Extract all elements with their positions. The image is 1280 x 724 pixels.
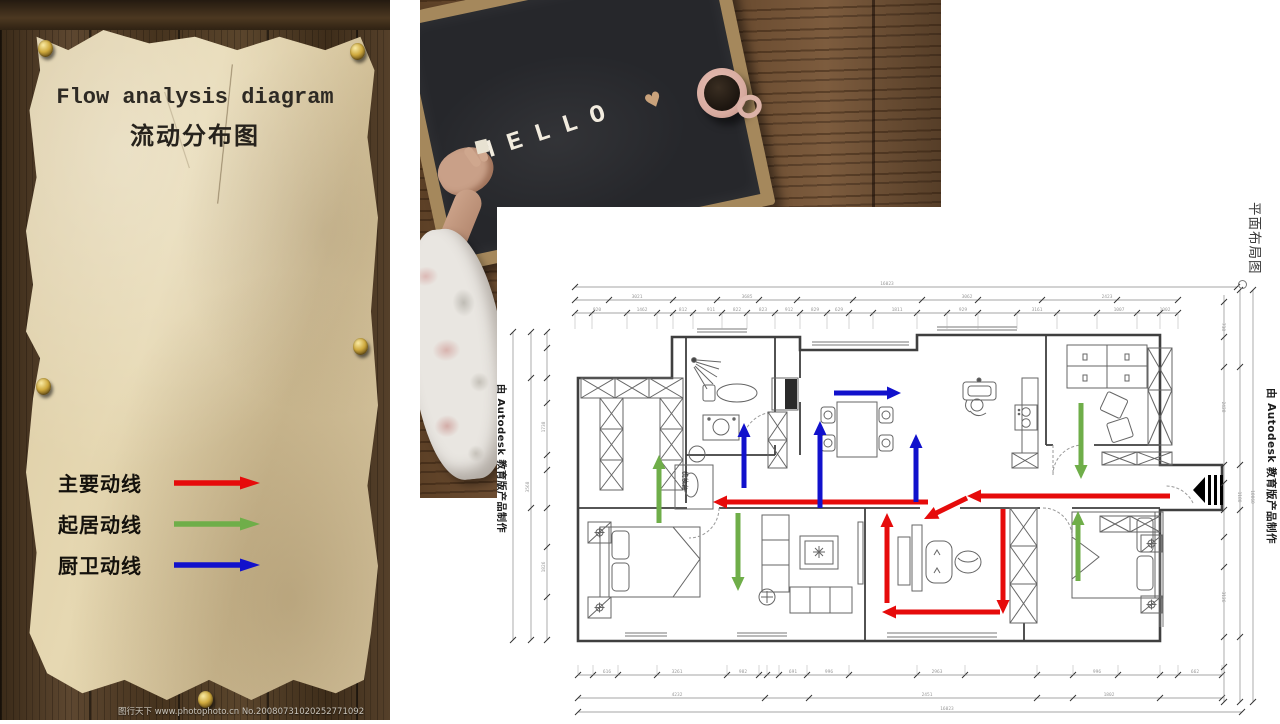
autodesk-watermark-right: 由 Autodesk 教育版产品制作 [1264,388,1279,544]
svg-text:1007: 1007 [1114,307,1125,313]
kitchen-dining [772,378,1038,457]
legend-row-kitchen-bath: 厨卫动线 [58,544,262,585]
svg-text:2428: 2428 [1220,402,1226,413]
autodesk-watermark-left: 由 Autodesk 教育版产品制作 [495,384,510,533]
svg-text:1002: 1002 [1160,307,1171,313]
study-desk-room [898,525,981,591]
svg-text:2423: 2423 [1102,294,1113,300]
svg-text:3126: 3126 [1220,592,1226,603]
legend-label: 厨卫动线 [58,550,170,579]
svg-text:829: 829 [811,307,819,313]
svg-text:2451: 2451 [922,692,933,698]
pin-icon [36,378,51,395]
entry-door-icon [1193,475,1223,505]
page-title: Flow analysis diagram 流动分布图 [0,85,390,151]
flow-arrows [653,387,1171,619]
svg-text:3021: 3021 [632,294,643,300]
svg-text:16023: 16023 [880,281,894,287]
legend-label: 主要动线 [58,468,170,497]
svg-text:4232: 4232 [672,692,683,698]
red-arrow-icon [170,475,262,491]
pin-icon [38,40,53,57]
svg-text:982: 982 [739,669,747,675]
svg-text:662: 662 [1191,669,1199,675]
green-arrow-icon [170,516,262,532]
svg-text:920: 920 [593,307,601,313]
door-arcs [689,412,1193,538]
legend-row-living: 起居动线 [58,503,262,544]
svg-text:3685: 3685 [742,294,753,300]
floor-plan: 1602330213685306224239201462812911822823… [497,207,1280,720]
wardrobes [581,348,1172,623]
svg-text:3568: 3568 [525,481,531,492]
plan-title-vertical: 平面布局图 [1246,202,1266,275]
svg-text:1462: 1462 [637,307,648,313]
slide-canvas: { "left_panel": { "title_en": "Flow anal… [0,0,1280,720]
svg-text:996: 996 [1093,669,1101,675]
windows [625,327,1163,637]
svg-text:616: 616 [603,669,611,675]
pin-icon [350,43,365,60]
svg-text:738: 738 [1220,323,1226,331]
title-english: Flow analysis diagram [0,85,390,110]
title-panel: Flow analysis diagram 流动分布图 主要动线 起居动线 厨卫… [0,0,390,720]
svg-text:2963: 2963 [932,669,943,675]
floor-plan-drawing: 1602330213685306224239201462812911822823… [497,207,1280,720]
svg-text:822: 822 [733,307,741,313]
svg-text:10060: 10060 [1249,490,1255,504]
svg-text:996: 996 [825,669,833,675]
svg-text:3062: 3062 [962,294,973,300]
svg-text:912: 912 [785,307,793,313]
coffee-cup [697,68,747,118]
svg-text:16023: 16023 [940,706,954,712]
pin-icon [353,338,368,355]
stock-watermark: 图行天下 www.photophoto.cn No.20080731020252… [118,705,364,717]
svg-text:812: 812 [679,307,687,313]
vanity-label: 梳妆台 [681,471,691,491]
svg-text:1180: 1180 [1236,492,1242,503]
svg-text:3161: 3161 [1032,307,1043,313]
svg-text:911: 911 [707,307,715,313]
svg-text:3261: 3261 [672,669,683,675]
wood-beam [0,0,390,30]
living-room [759,515,863,613]
coffee-surface [704,75,740,111]
svg-text:1826: 1826 [541,561,547,572]
svg-text:691: 691 [789,669,797,675]
svg-text:929: 929 [959,307,967,313]
svg-text:629: 629 [835,307,843,313]
flow-legend: 主要动线 起居动线 厨卫动线 [58,462,262,585]
master-bedroom [600,527,700,597]
blue-arrow-icon [170,557,262,573]
legend-row-main: 主要动线 [58,462,262,503]
legend-label: 起居动线 [58,509,170,538]
leader-circle-icon [1238,280,1247,289]
title-chinese: 流动分布图 [0,116,390,151]
svg-text:1802: 1802 [1104,692,1115,698]
svg-text:823: 823 [759,307,767,313]
svg-text:1811: 1811 [892,307,903,313]
svg-text:1738: 1738 [541,421,547,432]
